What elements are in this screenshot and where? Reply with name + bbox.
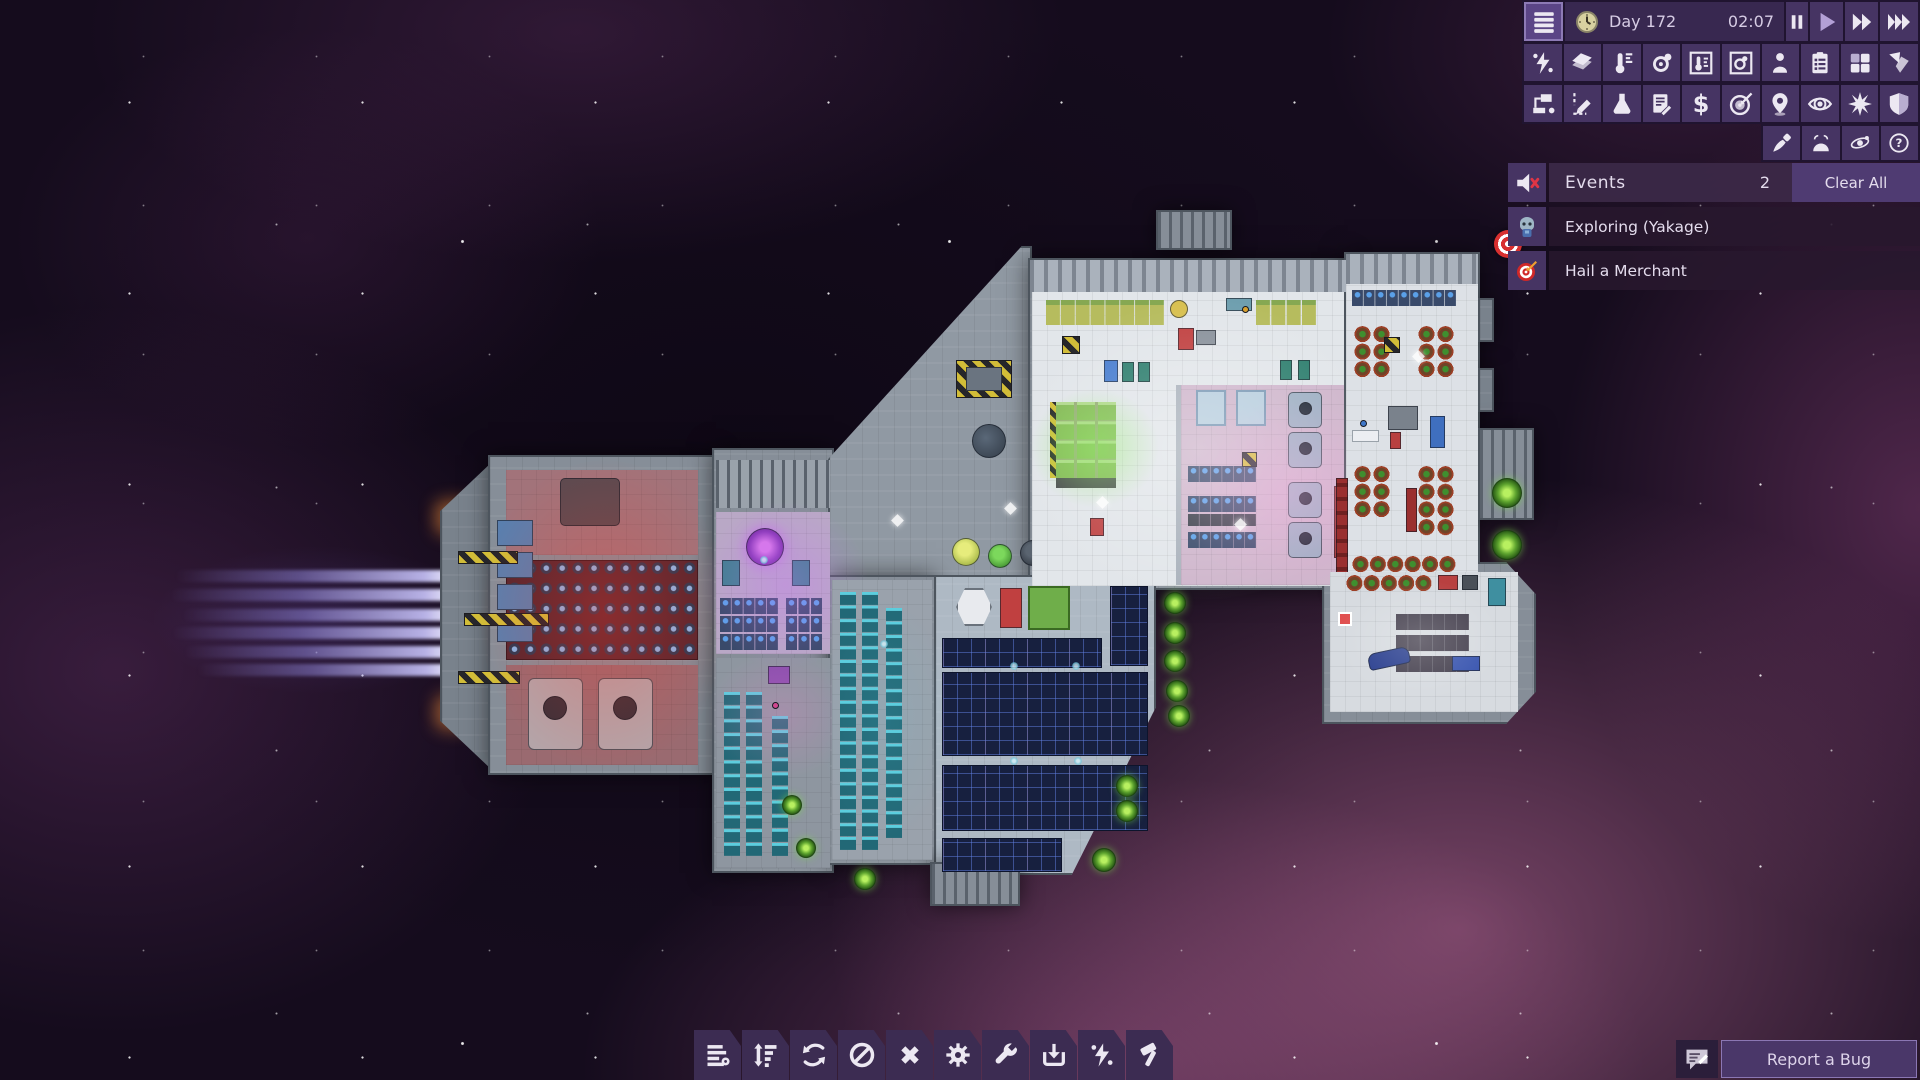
walkway-marker xyxy=(880,640,888,648)
fastest-forward-icon xyxy=(1887,10,1911,34)
report-bug-button[interactable]: Report a Bug xyxy=(1721,1040,1917,1078)
dish-antenna[interactable] xyxy=(972,424,1006,458)
red-machine[interactable] xyxy=(1438,575,1458,590)
clear-all-button[interactable]: Clear All xyxy=(1792,163,1920,202)
temperature-view-button[interactable] xyxy=(1682,44,1720,81)
walkway-marker xyxy=(1010,757,1018,765)
purple-machine[interactable] xyxy=(768,666,790,684)
green-crate-stack[interactable] xyxy=(1056,402,1116,478)
red-cabinet-tall[interactable] xyxy=(1336,478,1348,582)
power-overlay-icon xyxy=(1530,50,1556,76)
algae-orb-machine[interactable] xyxy=(988,544,1012,568)
event-item-icon-tile[interactable] xyxy=(1508,251,1546,290)
algae-vent[interactable] xyxy=(1168,705,1190,727)
overlay-toolbar-row1 xyxy=(1522,42,1920,83)
hull-tiles-button[interactable] xyxy=(1564,44,1602,81)
engine-trail xyxy=(197,664,452,676)
forbid-icon xyxy=(848,1041,876,1069)
contracts-button[interactable] xyxy=(1643,85,1681,122)
red-cabinet[interactable] xyxy=(1406,488,1417,532)
hamburger-icon xyxy=(1531,9,1557,35)
shuttle-button[interactable] xyxy=(1880,44,1918,81)
feedback-bubble-icon xyxy=(1683,1045,1711,1073)
teal-machine[interactable] xyxy=(1488,578,1506,606)
algae-vent[interactable] xyxy=(1092,848,1116,872)
crate-shelf xyxy=(1056,478,1116,488)
missions-target-icon xyxy=(1728,91,1754,117)
algae-vent[interactable] xyxy=(854,868,876,890)
engine-trail xyxy=(182,609,452,621)
priorities-button[interactable] xyxy=(742,1030,789,1080)
red-room-power[interactable] xyxy=(506,560,698,660)
washer-machine[interactable] xyxy=(1236,390,1266,426)
red-dispenser[interactable] xyxy=(1178,328,1194,350)
chair[interactable] xyxy=(1298,360,1310,380)
grow-beds[interactable] xyxy=(1418,466,1454,536)
event-item-bar[interactable]: Hail a Merchant xyxy=(1549,251,1920,290)
pause-icon xyxy=(1788,13,1806,31)
sleeping-pods[interactable] xyxy=(1046,300,1164,327)
logistics-nodes-icon xyxy=(1530,91,1556,117)
star-system-icon xyxy=(1849,132,1871,154)
svg-text:?: ? xyxy=(1896,136,1903,150)
work-queue-icon xyxy=(704,1041,732,1069)
cancel-button[interactable] xyxy=(886,1030,933,1080)
round-table[interactable] xyxy=(1170,300,1188,318)
algae-vent[interactable] xyxy=(1164,622,1186,644)
star-system-button[interactable] xyxy=(1842,126,1879,160)
clock-icon xyxy=(1575,10,1599,34)
engine-trail xyxy=(170,589,452,601)
event-item-label: Exploring (Yakage) xyxy=(1549,218,1709,236)
machine-port xyxy=(1299,402,1312,415)
algae-vent[interactable] xyxy=(1166,680,1188,702)
play-icon xyxy=(1816,11,1838,33)
operate-button[interactable] xyxy=(934,1030,981,1080)
game-viewport: Day 172 02:07 $ xyxy=(0,0,1920,1080)
rooms-grid-icon xyxy=(1847,50,1873,76)
hall-wall xyxy=(1030,260,1346,292)
maintain-button[interactable] xyxy=(982,1030,1029,1080)
crew-button[interactable] xyxy=(1762,44,1800,81)
chair[interactable] xyxy=(1138,362,1150,382)
cancel-x-icon xyxy=(896,1041,924,1069)
corridor[interactable] xyxy=(716,460,830,508)
work-queue-button[interactable] xyxy=(694,1030,741,1080)
locker-row[interactable] xyxy=(1352,290,1456,312)
dark-machine[interactable] xyxy=(1462,575,1478,590)
airlock-inner xyxy=(966,367,1002,391)
trade-dollar-icon: $ xyxy=(1688,91,1714,117)
contracts-icon xyxy=(1649,91,1675,117)
paint-brush-button[interactable] xyxy=(1763,126,1800,160)
rooms-grid-button[interactable] xyxy=(1841,44,1879,81)
temperature-icon xyxy=(1609,50,1635,76)
potted-plants[interactable] xyxy=(1346,575,1432,593)
draw-plan-icon xyxy=(1569,91,1595,117)
maintain-wrench-icon xyxy=(992,1041,1020,1069)
crew-icon xyxy=(1767,50,1793,76)
event-item-bar[interactable]: Exploring (Yakage) xyxy=(1549,207,1920,246)
water-dispenser[interactable] xyxy=(1104,360,1118,382)
teal-crates[interactable] xyxy=(840,592,878,850)
gas-circulation-icon xyxy=(1649,50,1675,76)
kitchen-counter[interactable] xyxy=(1388,406,1418,430)
med-machine[interactable] xyxy=(1000,588,1022,628)
hull-step[interactable] xyxy=(1478,298,1494,342)
grow-beds[interactable] xyxy=(1354,466,1390,518)
main-menu-button[interactable] xyxy=(1524,2,1563,41)
locker-row[interactable] xyxy=(1188,496,1256,513)
map-pin-button[interactable] xyxy=(1762,85,1800,122)
engine-trail xyxy=(175,570,452,582)
table[interactable] xyxy=(1352,430,1379,442)
svg-text:$: $ xyxy=(1693,91,1710,117)
blue-container[interactable] xyxy=(497,584,533,610)
help-button[interactable]: ? xyxy=(1881,126,1918,160)
events-count: 2 xyxy=(1760,173,1792,192)
power-button[interactable] xyxy=(1078,1030,1125,1080)
cryo-pod[interactable] xyxy=(1430,416,1445,448)
gray-machine[interactable] xyxy=(1196,330,1216,345)
grow-beds[interactable] xyxy=(1418,326,1454,378)
operate-gear-icon xyxy=(944,1041,972,1069)
salvage-button[interactable] xyxy=(1030,1030,1077,1080)
green-lab-machine[interactable] xyxy=(1028,586,1070,630)
teal-machine[interactable] xyxy=(792,560,810,586)
fast-forward-button[interactable] xyxy=(1845,2,1878,41)
play-button[interactable] xyxy=(1810,2,1843,41)
arcade-machine[interactable] xyxy=(1338,612,1352,626)
machine-port xyxy=(1299,532,1312,545)
paint-brush-icon xyxy=(1771,132,1793,154)
chair[interactable] xyxy=(1280,360,1292,380)
fast-forward-icon xyxy=(1851,11,1873,33)
solar-panel-band[interactable] xyxy=(942,838,1062,872)
locker-row[interactable] xyxy=(1188,532,1256,549)
rotate-icon xyxy=(800,1041,828,1069)
hull-top-vent[interactable] xyxy=(1156,210,1232,250)
teal-machine[interactable] xyxy=(722,560,740,586)
teal-crates[interactable] xyxy=(724,692,762,856)
event-item-label: Hail a Merchant xyxy=(1549,262,1687,280)
temperature-view-icon xyxy=(1688,50,1714,76)
events-title: Events xyxy=(1549,173,1760,193)
wing-wall xyxy=(1346,254,1478,284)
rotate-button[interactable] xyxy=(790,1030,837,1080)
event-item[interactable]: Exploring (Yakage) xyxy=(1508,207,1920,246)
fastest-forward-button[interactable] xyxy=(1880,2,1918,41)
engine-trail xyxy=(184,646,452,658)
hull-tiles-icon xyxy=(1569,50,1595,76)
missions-button[interactable] xyxy=(1722,85,1760,122)
hazard-tile xyxy=(1384,337,1400,353)
shield-icon xyxy=(1886,91,1912,117)
overlay-toolbar-row2: $ xyxy=(1522,83,1920,124)
planet-scan-button[interactable] xyxy=(1802,126,1839,160)
build-hammer-icon xyxy=(1136,1041,1164,1069)
power-icon xyxy=(1088,1041,1116,1069)
combat-burst-icon xyxy=(1847,91,1873,117)
events-header: Events 2 Clear All xyxy=(1508,163,1920,202)
hazard-stripe xyxy=(458,551,518,564)
power-overlay-button[interactable] xyxy=(1524,44,1562,81)
teal-crates[interactable] xyxy=(886,608,906,838)
event-item[interactable]: Hail a Merchant xyxy=(1508,251,1920,290)
events-mute-button[interactable] xyxy=(1508,163,1546,202)
event-item-icon-tile[interactable] xyxy=(1508,207,1546,246)
machine-port xyxy=(613,696,637,720)
locker-row[interactable] xyxy=(1188,466,1256,483)
hazard-stripe xyxy=(458,671,520,684)
crew-member[interactable] xyxy=(1360,420,1367,427)
hull-step[interactable] xyxy=(1478,368,1494,412)
date-time-display[interactable]: Day 172 02:07 xyxy=(1565,2,1784,41)
shuttle-icon xyxy=(1886,50,1912,76)
solar-panel-band[interactable] xyxy=(942,672,1148,756)
sleeping-pods[interactable] xyxy=(1256,300,1316,327)
help-icon: ? xyxy=(1888,132,1910,154)
map-pin-icon xyxy=(1767,91,1793,117)
time-label: 02:07 xyxy=(1728,12,1774,31)
salvage-download-icon xyxy=(1040,1041,1068,1069)
report-bug-label: Report a Bug xyxy=(1767,1050,1871,1069)
events-title-bar: Events 2 Clear All xyxy=(1549,163,1920,202)
speaker-muted-icon xyxy=(1514,170,1540,196)
solar-panel-band[interactable] xyxy=(1110,586,1148,666)
algae-vent[interactable] xyxy=(782,795,802,815)
algae-vent[interactable] xyxy=(796,838,816,858)
algae-vent[interactable] xyxy=(1116,800,1138,822)
walkway-marker xyxy=(760,556,768,564)
hazard-stripe xyxy=(464,613,549,626)
gas-circulation-button[interactable] xyxy=(1643,44,1681,81)
day-label: Day 172 xyxy=(1609,12,1718,31)
time-control-bar: Day 172 02:07 xyxy=(1522,0,1920,43)
solar-panel-band[interactable] xyxy=(942,765,1148,831)
chair[interactable] xyxy=(1122,362,1134,382)
draw-plan-button[interactable] xyxy=(1564,85,1602,122)
blue-desk[interactable] xyxy=(1452,656,1480,671)
algae-vent[interactable] xyxy=(1492,478,1522,508)
crew-member[interactable] xyxy=(1242,306,1249,313)
visibility-eye-icon xyxy=(1807,91,1833,117)
bug-report-icon-tile[interactable] xyxy=(1676,1040,1718,1078)
hazard-tile xyxy=(1242,452,1257,467)
algae-vent[interactable] xyxy=(1164,592,1186,614)
combat-button[interactable] xyxy=(1841,85,1879,122)
research-button[interactable] xyxy=(1603,85,1641,122)
temperature-button[interactable] xyxy=(1603,44,1641,81)
view-toolbar: ? xyxy=(1761,124,1920,162)
walkway-marker xyxy=(1010,662,1018,670)
red-chair[interactable] xyxy=(1390,432,1401,449)
teal-crates[interactable] xyxy=(772,716,792,856)
task-list-button[interactable] xyxy=(1801,44,1839,81)
blue-container[interactable] xyxy=(497,520,533,546)
forbid-button[interactable] xyxy=(838,1030,885,1080)
trade-button[interactable]: $ xyxy=(1682,85,1720,122)
explorer-portrait-icon xyxy=(1515,215,1539,239)
planet-scan-icon xyxy=(1810,132,1832,154)
generator-machine[interactable] xyxy=(560,478,620,526)
walkway-marker xyxy=(1074,757,1082,765)
washer-machine[interactable] xyxy=(1196,390,1226,426)
storage-lockers[interactable] xyxy=(720,598,778,650)
shield-button[interactable] xyxy=(1880,85,1918,122)
machine-port xyxy=(543,696,567,720)
algae-orb-machine[interactable] xyxy=(952,538,980,566)
red-crate[interactable] xyxy=(1090,518,1104,536)
task-list-icon xyxy=(1807,50,1833,76)
build-button[interactable] xyxy=(1126,1030,1173,1080)
storage-lockers[interactable] xyxy=(786,598,822,650)
hazard-tile xyxy=(1062,336,1080,354)
oxygen-view-icon xyxy=(1728,50,1754,76)
priorities-icon xyxy=(752,1041,780,1069)
research-flask-icon xyxy=(1609,91,1635,117)
visibility-button[interactable] xyxy=(1801,85,1839,122)
engine-trail xyxy=(172,627,452,639)
crew-member[interactable] xyxy=(772,702,779,709)
oxygen-view-button[interactable] xyxy=(1722,44,1760,81)
algae-vent[interactable] xyxy=(1164,650,1186,672)
walkway-marker xyxy=(1072,662,1080,670)
pause-button[interactable] xyxy=(1786,2,1808,41)
machine-port xyxy=(1299,442,1312,455)
logistics-nodes-button[interactable] xyxy=(1524,85,1562,122)
algae-vent[interactable] xyxy=(1492,530,1522,560)
machine-port xyxy=(1299,492,1312,505)
target-dart-icon xyxy=(1515,259,1539,283)
algae-vent[interactable] xyxy=(1116,775,1138,797)
